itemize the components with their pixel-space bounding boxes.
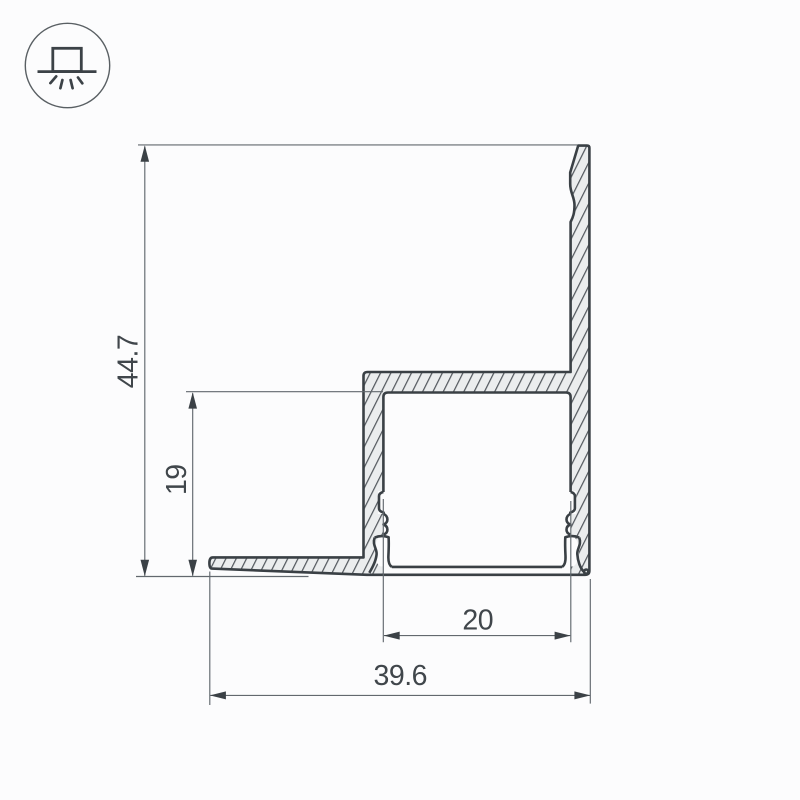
svg-text:19: 19: [161, 464, 193, 495]
svg-text:44.7: 44.7: [113, 335, 145, 388]
svg-text:20: 20: [462, 604, 493, 636]
svg-text:39.6: 39.6: [374, 660, 427, 692]
